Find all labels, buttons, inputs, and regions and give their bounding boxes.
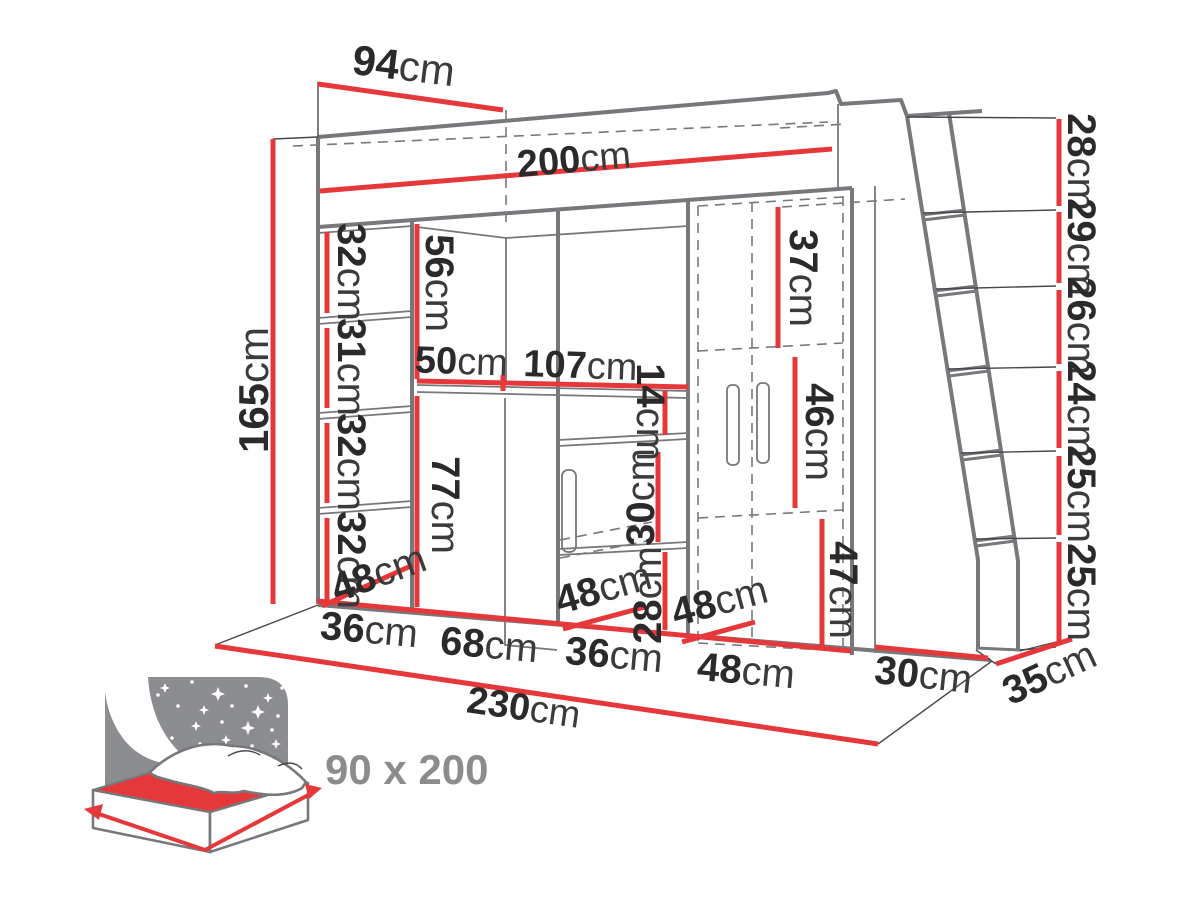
dim-label-step-5: 25cm xyxy=(1059,445,1103,543)
star-icon xyxy=(270,728,274,732)
dim-label-shelf-2: 31cm xyxy=(329,318,373,416)
ladder-foot xyxy=(976,648,1020,650)
dim-label-30: 30cm xyxy=(619,448,663,546)
dimension-labels: 94cm 200cm 165cm 32cm 31cm 32cm 32cm 56c… xyxy=(230,36,1103,793)
dim-label-47: 47cm xyxy=(821,541,865,639)
dim-label-shelf-1: 32cm xyxy=(329,223,373,321)
ladder xyxy=(907,113,1020,651)
dim-label-14: 14cm xyxy=(628,363,672,461)
dim-label-46: 46cm xyxy=(797,383,841,481)
ladder-step-1 xyxy=(921,210,965,220)
ladder-step-5 xyxy=(974,536,1015,546)
dim-label-step-6: 25cm xyxy=(1059,543,1103,641)
ladder-left-rail xyxy=(907,116,978,649)
dim-label-107: 107cm xyxy=(523,343,638,389)
bunk-beam-bottom-edge xyxy=(318,188,852,227)
dim-label-165: 165cm xyxy=(230,327,277,453)
ladder-step-4 xyxy=(960,450,1002,460)
dim-label-width-desk: 68cm xyxy=(438,619,539,671)
dim-label-depth-right: 48cm xyxy=(667,568,773,636)
dim-label-94: 94cm xyxy=(350,36,458,95)
dim-label-56: 56cm xyxy=(417,234,461,332)
dim-label-37: 37cm xyxy=(781,229,825,327)
furniture-dimension-diagram: 94cm 200cm 165cm 32cm 31cm 32cm 32cm 56c… xyxy=(0,0,1200,899)
bed-size-icon xyxy=(84,677,322,852)
star-icon xyxy=(170,736,174,740)
dim-label-width-shelves: 36cm xyxy=(318,604,419,656)
dim-label-77: 77cm xyxy=(423,456,467,554)
star-icon xyxy=(176,704,180,708)
dim-label-step-1: 28cm xyxy=(1059,113,1103,211)
ladder-right-rail xyxy=(949,113,1018,651)
diagram-page: 94cm 200cm 165cm 32cm 31cm 32cm 32cm 56c… xyxy=(0,0,1200,899)
dim-label-width-cabinet: 36cm xyxy=(563,629,664,681)
dim-label-step-4: 24cm xyxy=(1059,360,1103,458)
ladder-step-3 xyxy=(947,366,989,376)
star-icon xyxy=(280,686,284,690)
wardrobe-handle-left xyxy=(727,385,739,465)
dim-label-200: 200cm xyxy=(515,134,632,186)
wardrobe-handle-right xyxy=(757,383,769,463)
dim-label-width-ladder: 30cm xyxy=(872,648,974,702)
star-icon xyxy=(220,720,224,724)
dim-label-230: 230cm xyxy=(464,679,583,736)
mattress-size-label: 90 x 200 xyxy=(325,746,489,793)
star-icon xyxy=(244,684,248,688)
dim-label-width-wardrobe: 48cm xyxy=(695,645,796,697)
dim-label-50: 50cm xyxy=(414,339,508,384)
dim-label-shelf-3: 32cm xyxy=(329,413,373,511)
star-icon xyxy=(156,693,160,697)
star-icon xyxy=(190,680,194,684)
star-icon xyxy=(276,714,280,718)
star-icon xyxy=(230,704,234,708)
